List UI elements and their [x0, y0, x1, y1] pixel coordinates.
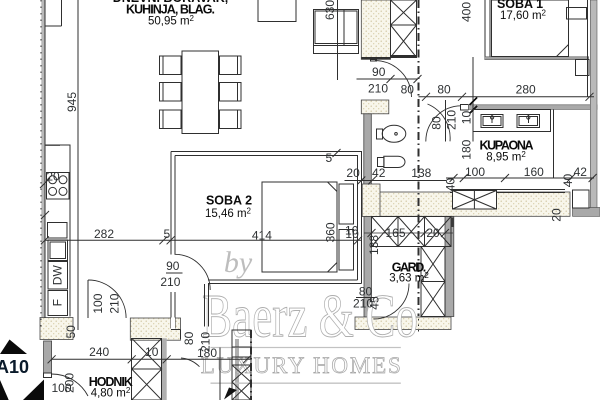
svg-text:80: 80	[182, 331, 196, 345]
svg-text:100: 100	[465, 165, 485, 179]
svg-text:17,60 m2: 17,60 m2	[500, 9, 547, 23]
svg-text:A10: A10	[0, 357, 29, 377]
svg-text:50,95 m2: 50,95 m2	[148, 14, 195, 28]
svg-text:210: 210	[368, 82, 388, 96]
svg-text:210: 210	[107, 293, 121, 313]
svg-text:90: 90	[372, 65, 386, 79]
svg-text:138: 138	[367, 235, 381, 255]
svg-text:80: 80	[430, 116, 444, 130]
svg-text:by: by	[224, 246, 253, 279]
svg-text:50: 50	[64, 325, 78, 339]
svg-text:20: 20	[346, 166, 360, 180]
svg-text:F: F	[51, 299, 65, 306]
svg-text:45: 45	[368, 296, 382, 310]
svg-text:3,63 m2: 3,63 m2	[389, 271, 429, 285]
svg-text:20: 20	[46, 170, 60, 184]
svg-text:40: 40	[444, 178, 458, 192]
svg-text:4,80 m2: 4,80 m2	[91, 386, 131, 400]
svg-text:90: 90	[166, 259, 180, 273]
svg-text:280: 280	[516, 83, 536, 97]
svg-text:138: 138	[411, 166, 431, 180]
svg-text:10: 10	[145, 345, 159, 359]
svg-text:100: 100	[51, 381, 71, 395]
svg-text:400: 400	[460, 2, 474, 22]
svg-text:282: 282	[94, 227, 114, 241]
svg-text:414: 414	[252, 229, 272, 243]
svg-text:10: 10	[460, 111, 474, 125]
svg-text:160: 160	[524, 165, 544, 179]
svg-text:KUHINJA, BLAG.: KUHINJA, BLAG.	[126, 3, 215, 17]
svg-text:40: 40	[561, 174, 575, 188]
svg-text:630: 630	[323, 0, 337, 20]
svg-text:945: 945	[65, 92, 79, 112]
svg-text:SOBA 2: SOBA 2	[206, 194, 252, 208]
svg-text:42: 42	[574, 165, 588, 179]
svg-text:80: 80	[401, 83, 415, 97]
svg-text:100: 100	[91, 293, 105, 313]
svg-text:8,95 m2: 8,95 m2	[486, 150, 526, 164]
svg-text:5: 5	[325, 151, 332, 165]
svg-text:DW: DW	[51, 265, 65, 286]
svg-text:210: 210	[199, 332, 213, 352]
svg-text:15,46 m2: 15,46 m2	[205, 207, 252, 221]
svg-text:42: 42	[372, 166, 386, 180]
svg-text:80: 80	[437, 83, 451, 97]
svg-text:5: 5	[163, 227, 170, 241]
svg-text:180: 180	[460, 139, 474, 159]
svg-text:210: 210	[445, 110, 459, 130]
svg-text:240: 240	[89, 345, 109, 359]
svg-text:20: 20	[550, 208, 564, 222]
svg-text:165: 165	[385, 226, 405, 240]
svg-text:360: 360	[324, 222, 338, 242]
svg-text:210: 210	[160, 275, 180, 289]
svg-text:20: 20	[426, 226, 440, 240]
svg-text:10: 10	[345, 224, 359, 238]
